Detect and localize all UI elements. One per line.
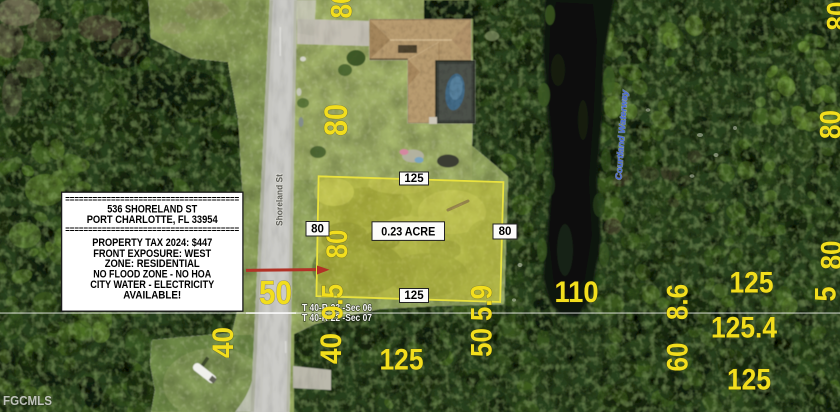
svg-text:125: 125 [730, 267, 774, 300]
svg-text:5: 5 [810, 287, 840, 302]
svg-text:==============================: ====================================== [65, 225, 239, 235]
svg-text:50: 50 [259, 274, 292, 311]
svg-text:40: 40 [315, 333, 348, 364]
svg-text:40: 40 [207, 327, 240, 358]
svg-text:80: 80 [326, 0, 359, 19]
svg-text:8.6: 8.6 [662, 284, 695, 320]
svg-text:60: 60 [662, 343, 695, 372]
svg-text:5.9: 5.9 [466, 285, 499, 321]
svg-text:125.4: 125.4 [711, 312, 778, 345]
svg-text:AVAILABLE!: AVAILABLE! [123, 290, 181, 302]
svg-text:9.5: 9.5 [317, 284, 350, 320]
svg-text:80: 80 [318, 104, 354, 136]
svg-text:50: 50 [466, 328, 499, 357]
svg-text:125: 125 [404, 290, 424, 302]
svg-text:FGCMLS: FGCMLS [3, 394, 52, 408]
svg-text:125: 125 [727, 364, 771, 397]
svg-text:125: 125 [380, 344, 424, 377]
svg-text:80: 80 [815, 110, 840, 139]
svg-text:125: 125 [404, 173, 424, 185]
svg-text:Shoreland St: Shoreland St [275, 174, 285, 226]
svg-text:110: 110 [555, 276, 599, 309]
svg-text:80: 80 [822, 2, 840, 31]
svg-text:80: 80 [816, 241, 840, 270]
svg-text:80: 80 [311, 223, 324, 235]
svg-text:80: 80 [499, 226, 512, 238]
svg-text:0.23 ACRE: 0.23 ACRE [381, 225, 435, 239]
